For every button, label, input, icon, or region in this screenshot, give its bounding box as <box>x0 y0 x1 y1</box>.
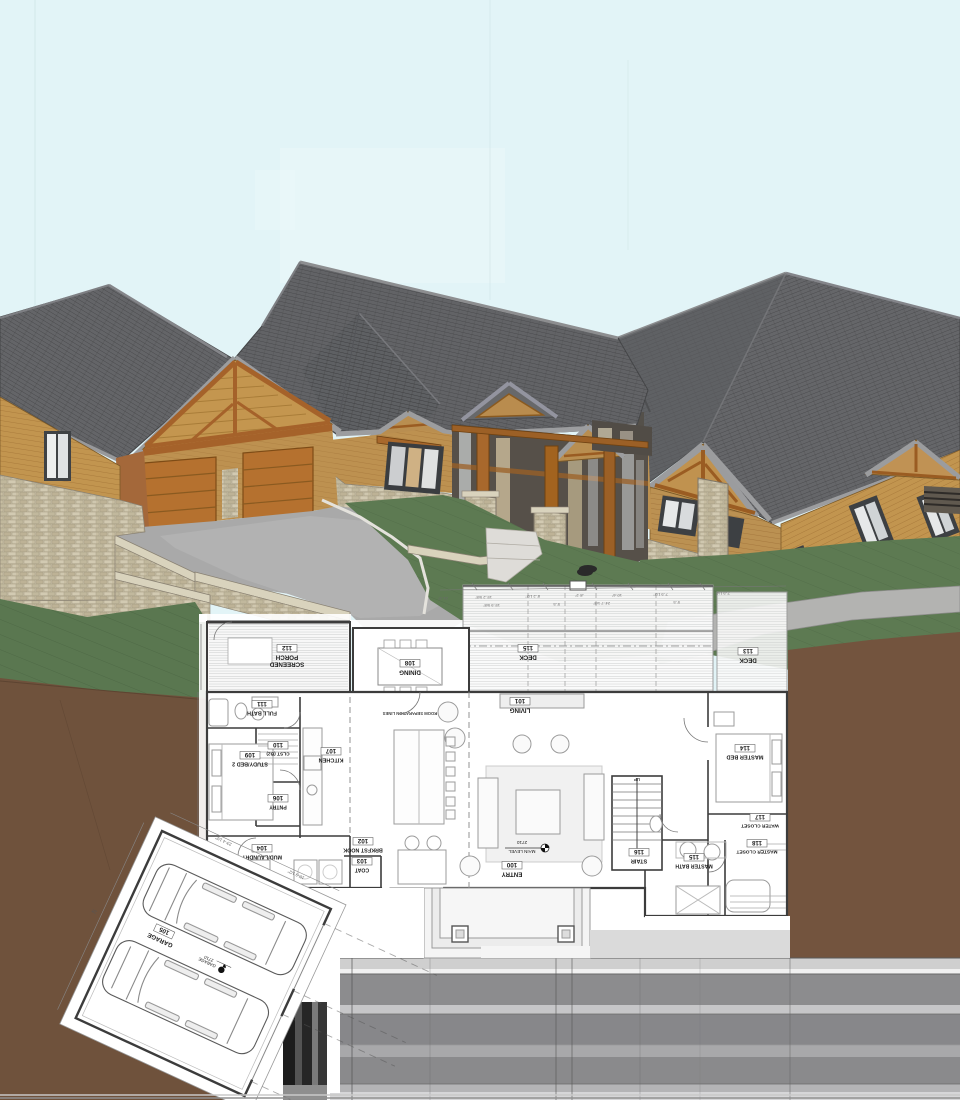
svg-text:112: 112 <box>281 644 292 651</box>
svg-text:117: 117 <box>754 813 765 820</box>
svg-text:115: 115 <box>522 644 533 651</box>
svg-text:BRKFST NOOK: BRKFST NOOK <box>343 847 383 853</box>
svg-text:MAIN LEVEL: MAIN LEVEL <box>508 849 536 854</box>
svg-text:MASTER BATH: MASTER BATH <box>675 863 713 869</box>
svg-text:PNTRY: PNTRY <box>269 804 287 810</box>
svg-text:ENTRY: ENTRY <box>501 871 523 878</box>
svg-text:SCREENED: SCREENED <box>269 661 304 668</box>
svg-text:24'-8": 24'-8" <box>437 596 448 601</box>
svg-text:115: 115 <box>688 853 699 860</box>
svg-text:108: 108 <box>404 659 415 666</box>
svg-text:DECK: DECK <box>519 654 537 661</box>
svg-text:STAIR: STAIR <box>631 858 647 864</box>
svg-text:COAT: COAT <box>354 867 369 873</box>
svg-text:102: 102 <box>357 837 368 844</box>
svg-text:114: 114 <box>739 744 750 751</box>
svg-text:24'-7 1/8": 24'-7 1/8" <box>593 601 610 606</box>
svg-text:8'-2 1/2": 8'-2 1/2" <box>525 594 540 599</box>
svg-text:2710: 2710 <box>516 840 527 845</box>
svg-text:113: 113 <box>742 647 753 654</box>
svg-text:MASTER CLOSET: MASTER CLOSET <box>736 849 777 855</box>
svg-text:15'-9 5/8": 15'-9 5/8" <box>483 603 500 608</box>
svg-text:-8' 2": -8' 2" <box>574 593 584 598</box>
svg-text:107: 107 <box>325 747 336 754</box>
svg-text:103: 103 <box>356 857 367 864</box>
svg-text:104: 104 <box>256 844 267 851</box>
svg-text:118: 118 <box>751 839 762 846</box>
svg-text:116: 116 <box>633 848 644 855</box>
svg-text:106: 106 <box>272 794 283 801</box>
svg-text:LIVING: LIVING <box>510 707 531 714</box>
svg-text:111: 111 <box>257 700 267 707</box>
svg-text:CLST (B2): CLST (B2) <box>266 751 290 757</box>
svg-text:5'-5: 5'-5 <box>553 602 560 607</box>
svg-text:7'-9 1/2": 7'-9 1/2" <box>653 592 668 597</box>
svg-text:101: 101 <box>514 697 525 704</box>
svg-text:7'-9 1/4": 7'-9 1/4" <box>715 591 730 596</box>
svg-text:15'-2 5/8": 15'-2 5/8" <box>475 595 492 600</box>
svg-text:STUDY/BED 2: STUDY/BED 2 <box>232 761 268 767</box>
svg-text:ROOM SEPARATION LINES: ROOM SEPARATION LINES <box>383 711 438 716</box>
svg-text:10'-6": 10'-6" <box>611 593 622 598</box>
svg-text:MASTER BED: MASTER BED <box>727 754 764 760</box>
svg-text:FULL BATH: FULL BATH <box>247 710 277 716</box>
svg-text:WATER CLOSET: WATER CLOSET <box>741 823 779 829</box>
svg-text:110: 110 <box>272 741 283 748</box>
svg-text:UP: UP <box>634 777 640 782</box>
svg-text:DECK: DECK <box>739 657 757 664</box>
svg-text:109: 109 <box>244 751 255 758</box>
svg-text:5'-5: 5'-5 <box>673 600 680 605</box>
svg-text:KITCHEN: KITCHEN <box>319 757 344 763</box>
svg-text:MUD/LAUNDRY: MUD/LAUNDRY <box>242 854 282 860</box>
svg-text:PORCH: PORCH <box>275 654 298 661</box>
svg-text:100: 100 <box>506 861 517 868</box>
svg-text:DINING: DINING <box>399 669 421 676</box>
